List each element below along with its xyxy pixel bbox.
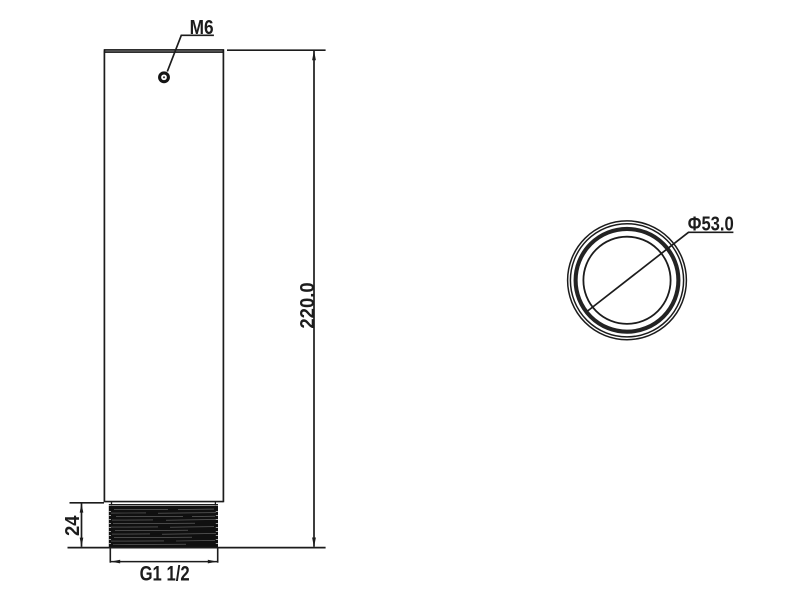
svg-text:220.0: 220.0: [297, 282, 319, 328]
svg-text:M6: M6: [190, 17, 214, 39]
svg-text:24: 24: [62, 515, 84, 536]
svg-text:Φ53.0: Φ53.0: [688, 213, 734, 236]
svg-text:G1 1/2: G1 1/2: [140, 562, 190, 585]
